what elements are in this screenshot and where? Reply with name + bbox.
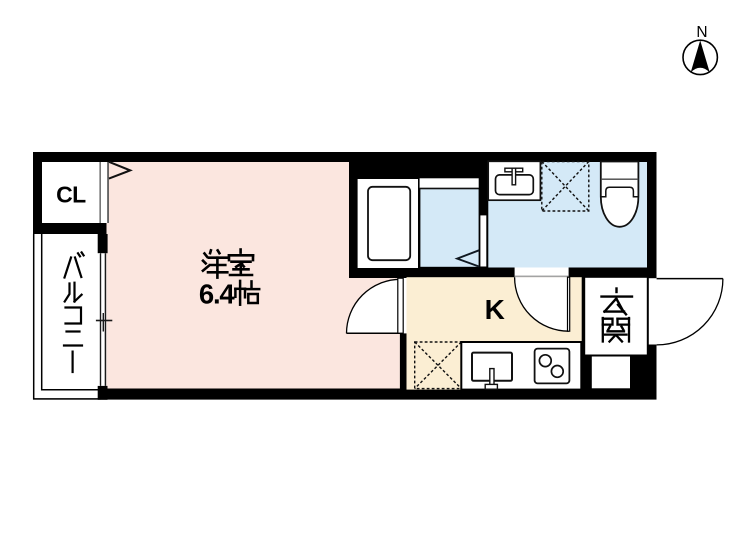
svg-text:CL: CL [56,182,86,208]
svg-text:6.4: 6.4 [199,279,236,310]
svg-text:N: N [696,24,707,41]
svg-text:K: K [485,294,505,325]
